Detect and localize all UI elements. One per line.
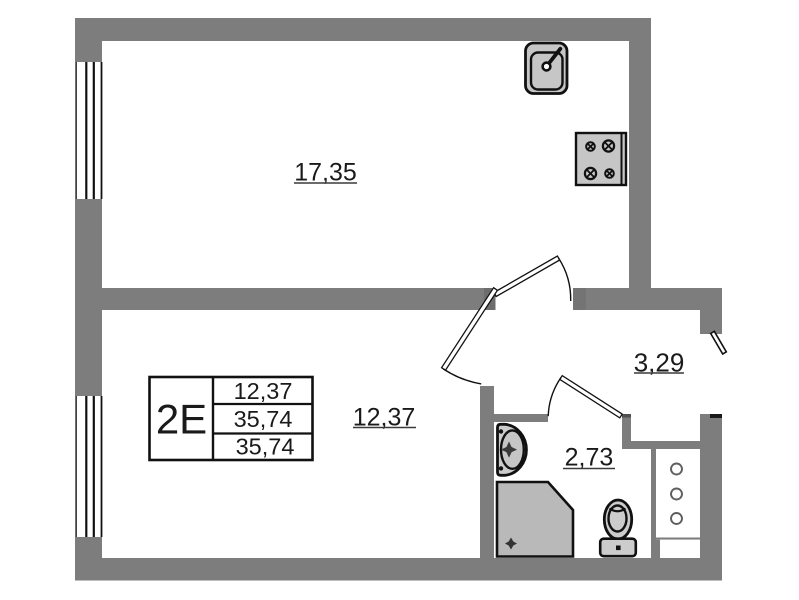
- svg-text:12,37: 12,37: [234, 378, 293, 404]
- svg-text:2E: 2E: [156, 396, 207, 443]
- svg-text:35,74: 35,74: [234, 406, 293, 432]
- svg-text:2,73: 2,73: [565, 444, 614, 472]
- svg-text:35,74: 35,74: [236, 434, 295, 460]
